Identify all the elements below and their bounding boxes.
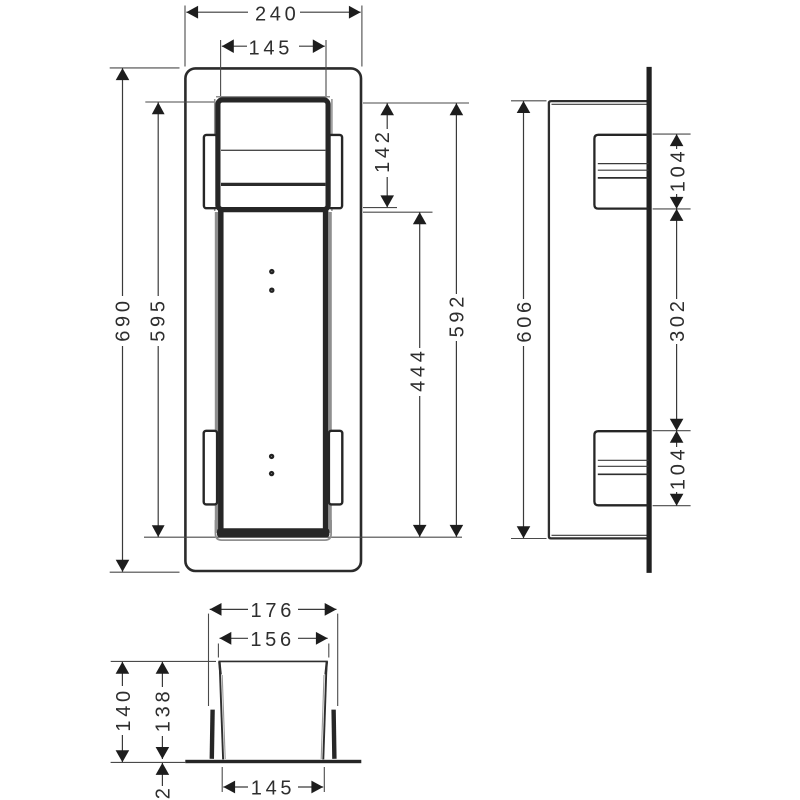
svg-text:156: 156 [250, 629, 294, 651]
svg-text:104: 104 [668, 446, 690, 490]
svg-text:145: 145 [251, 777, 295, 799]
svg-text:176: 176 [251, 600, 295, 622]
svg-text:138: 138 [153, 688, 175, 732]
svg-text:302: 302 [667, 297, 689, 341]
svg-text:104: 104 [668, 148, 690, 192]
svg-text:690: 690 [113, 297, 135, 341]
svg-text:444: 444 [408, 347, 430, 391]
svg-text:592: 592 [447, 293, 469, 337]
svg-text:145: 145 [249, 38, 293, 60]
svg-text:140: 140 [113, 687, 135, 731]
svg-text:142: 142 [372, 128, 394, 172]
svg-text:240: 240 [255, 3, 299, 25]
svg-text:606: 606 [514, 298, 536, 342]
svg-text:595: 595 [147, 297, 169, 341]
svg-text:2: 2 [153, 784, 175, 799]
